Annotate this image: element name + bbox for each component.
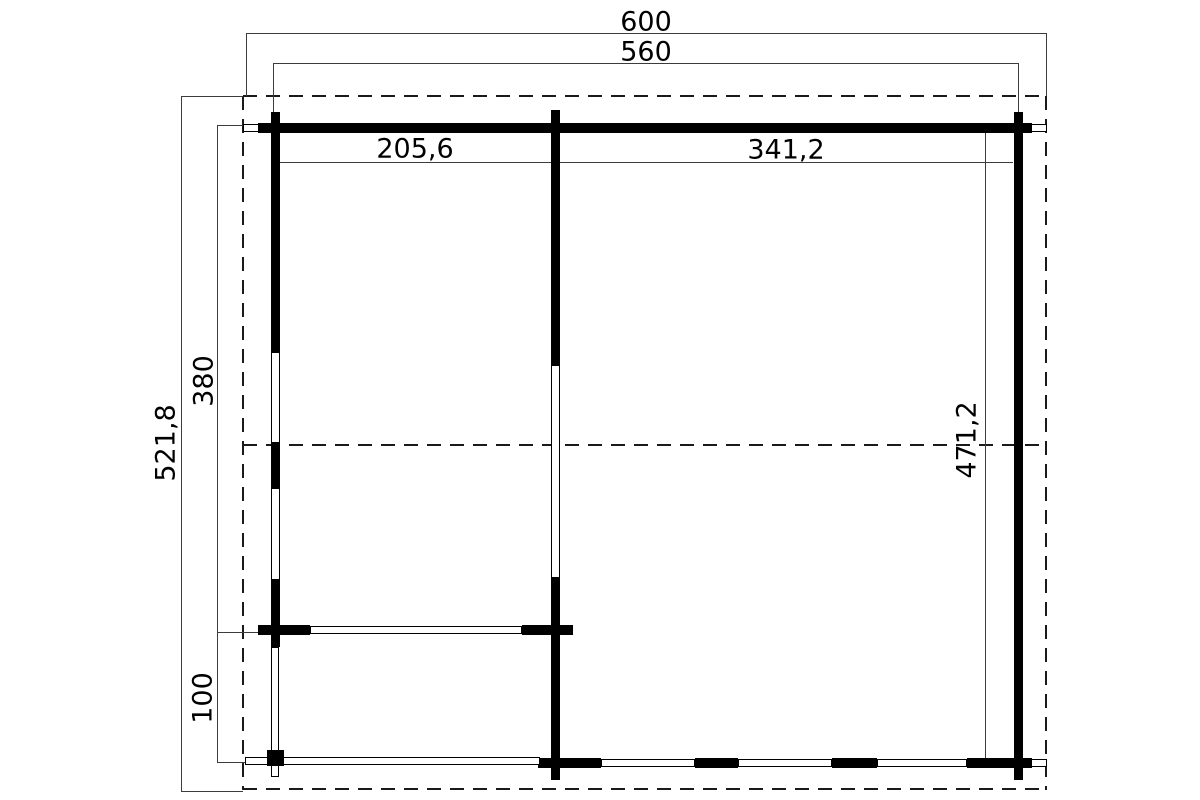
wall-bottom-seg-2 [695,758,738,768]
dim-label-right-room-width: 341,2 [747,137,824,164]
dim-line-380-100 [217,125,218,763]
dim-ext-total-depth-top [181,96,243,97]
roof-outline-top [243,95,1047,97]
dim-label-main-depth: 380 [191,355,218,407]
dim-label-total-depth: 521,8 [153,404,180,481]
wall-middle-upper [551,110,560,365]
dim-label-frame-width: 560 [620,39,672,66]
dim-label-overall-width: 600 [620,9,672,36]
wall-left-upper [271,112,280,352]
wall-top-log-end-right [1031,124,1047,132]
dim-ext-560-right [1018,63,1019,112]
wall-bottom-log-end-right [1031,759,1047,767]
dim-ext-560-left [273,63,274,112]
dim-label-veranda-depth: 100 [190,672,217,724]
interior-wall-left-seg [258,625,310,635]
roof-outline-right [1045,96,1047,790]
window-left-2 [271,488,280,580]
dim-label-interior-room-depth: 471,2 [954,401,981,478]
veranda-railing-bottom [245,757,540,765]
dim-ext-100-bottom [217,762,245,763]
dim-label-left-room-width: 205,6 [376,136,453,163]
roof-outline-bottom [243,788,1047,790]
dim-ext-380-bottom [217,632,258,633]
interior-wall-right-seg [522,625,573,635]
roof-outline-left [242,96,244,790]
interior-door-band [310,626,522,634]
window-middle [551,365,560,578]
roof-ridge-line [243,444,1047,446]
wall-bottom-seg-1 [538,758,601,768]
veranda-corner-post [267,750,284,766]
dim-ext-600-right [1046,33,1047,96]
dim-ext-600-left [246,33,247,96]
window-bottom-1 [601,759,695,767]
wall-left-lower [271,580,280,647]
wall-top [258,123,1032,133]
window-bottom-3 [877,759,967,767]
wall-middle-lower [551,578,560,780]
wall-bottom-seg-3 [832,758,877,768]
wall-right [1014,112,1023,780]
wall-bottom-seg-4 [967,758,1032,768]
dim-line-interior-depth [985,133,986,758]
dim-ext-total-depth-bottom [181,791,243,792]
wall-left-mid [271,443,280,488]
window-left-1 [271,352,280,443]
wall-top-log-end-left [243,124,259,132]
window-bottom-2 [738,759,832,767]
floor-plan-canvas: 600 560 205,6 341,2 521,8 380 100 471,2 [0,0,1200,800]
